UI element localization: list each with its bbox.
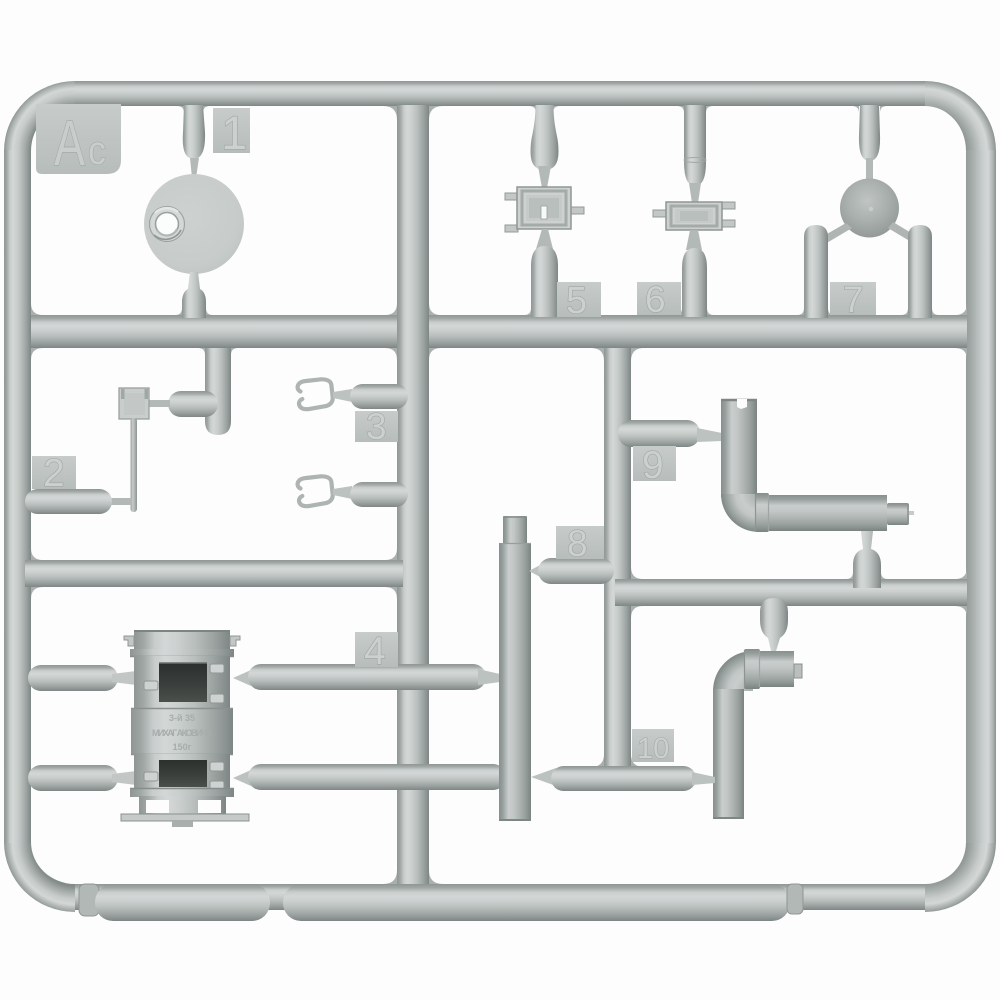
svg-text:9: 9 (642, 444, 664, 487)
svg-text:10: 10 (637, 733, 669, 765)
svg-text:1: 1 (221, 106, 247, 159)
svg-text:8: 8 (567, 523, 588, 564)
svg-text:6: 6 (645, 279, 666, 320)
svg-text:3-й 35: 3-й 35 (169, 713, 195, 723)
svg-text:7: 7 (843, 279, 864, 320)
svg-text:3: 3 (366, 406, 387, 447)
svg-text:4: 4 (364, 630, 386, 673)
svg-text:150г: 150г (173, 742, 192, 752)
svg-text:МИХАГ АКОВИЧА: МИХАГ АКОВИЧА (152, 728, 213, 738)
svg-text:c: c (88, 127, 106, 173)
svg-text:A: A (54, 107, 85, 179)
svg-text:2: 2 (43, 452, 65, 495)
svg-text:5: 5 (566, 280, 587, 322)
